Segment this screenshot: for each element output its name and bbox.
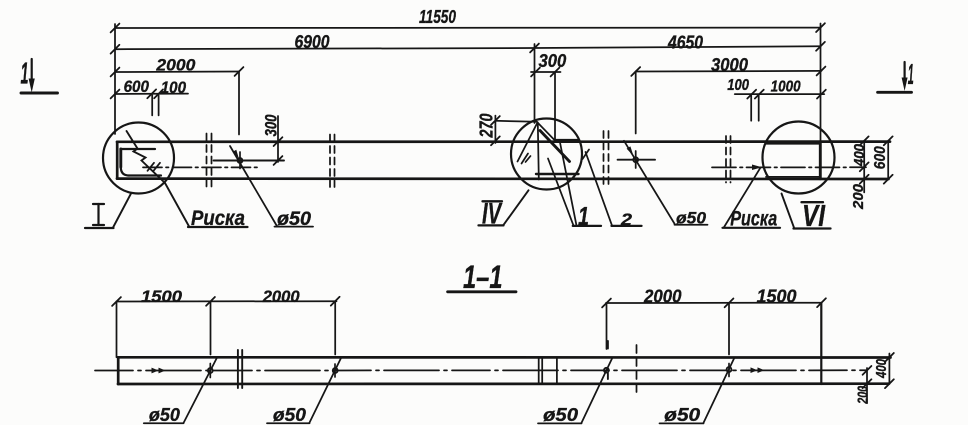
svg-text:4650: 4650 (667, 32, 703, 52)
svg-text:200: 200 (854, 385, 871, 404)
svg-text:100: 100 (161, 78, 187, 97)
svg-text:11550: 11550 (419, 7, 456, 27)
svg-text:1500: 1500 (757, 287, 797, 307)
svg-text:3000: 3000 (711, 55, 748, 75)
svg-text:ø50: ø50 (664, 405, 700, 425)
svg-text:600: 600 (124, 77, 150, 96)
svg-text:270: 270 (476, 114, 496, 139)
svg-text:ø50: ø50 (273, 405, 306, 425)
svg-text:300: 300 (539, 51, 567, 71)
svg-text:400: 400 (851, 143, 868, 166)
svg-text:2000: 2000 (155, 56, 196, 75)
svg-text:1000: 1000 (771, 79, 801, 96)
svg-text:300: 300 (261, 114, 280, 136)
svg-text:ø50: ø50 (543, 405, 578, 425)
svg-text:2000: 2000 (262, 287, 301, 306)
svg-text:200: 200 (850, 183, 867, 210)
svg-text:2000: 2000 (643, 287, 681, 307)
svg-text:600: 600 (872, 146, 889, 169)
svg-text:1: 1 (908, 59, 914, 91)
svg-text:ø50: ø50 (149, 405, 180, 425)
svg-text:400: 400 (873, 359, 890, 379)
svg-text:1–1: 1–1 (463, 259, 503, 295)
svg-text:1500: 1500 (141, 287, 183, 306)
svg-text:6900: 6900 (295, 32, 330, 52)
svg-text:100: 100 (727, 77, 749, 94)
svg-text:1: 1 (21, 56, 29, 91)
